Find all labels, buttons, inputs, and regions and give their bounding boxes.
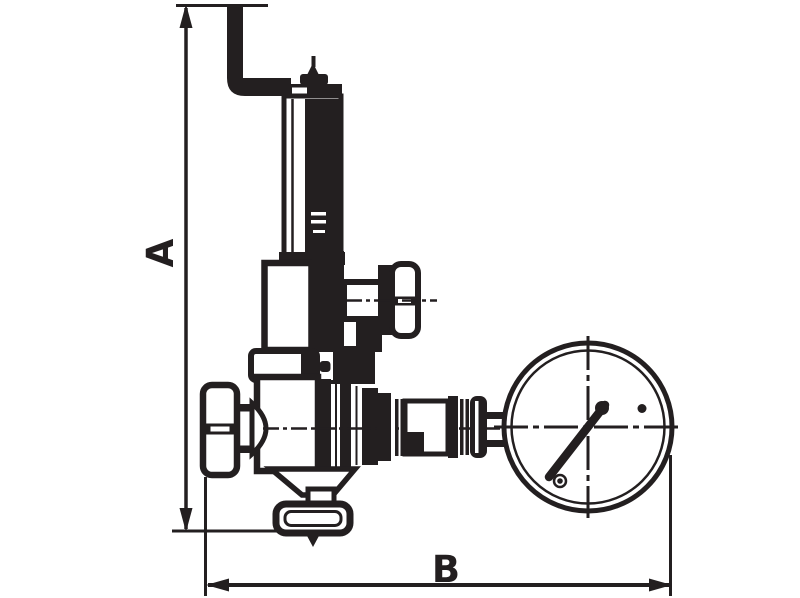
dimension-b-label: B	[432, 548, 460, 591]
spring-coil-mark	[311, 212, 326, 216]
screw-cap	[300, 74, 328, 85]
gauge-needle-head	[595, 401, 609, 415]
adjusting-screw	[288, 56, 342, 97]
spring-coil-mark	[311, 220, 326, 224]
spring-coil-mark	[313, 230, 325, 233]
pressure-gauge	[494, 336, 682, 518]
outlet-flange	[276, 504, 350, 533]
fitting-collar	[377, 393, 391, 461]
upper-housing-right-section	[312, 251, 344, 348]
arrow-up-icon	[180, 4, 193, 28]
hex-facet	[340, 383, 351, 468]
valve-dimension-diagram: A B	[0, 0, 800, 598]
gauge-screw-center	[557, 478, 563, 484]
fitting-collar	[448, 396, 458, 458]
gauge-needle	[549, 405, 605, 477]
gauge-socket-slot	[475, 401, 479, 453]
discharge-pipe	[227, 6, 291, 96]
arrow-left-icon	[206, 579, 229, 592]
flange-bolt	[320, 361, 331, 372]
technical-drawing-canvas: A B	[0, 0, 800, 598]
dimension-a-label: A	[139, 238, 182, 267]
upper-housing-shell	[265, 263, 312, 350]
fitting-thread-line	[466, 399, 470, 455]
upper-housing	[265, 251, 438, 352]
fitting-block-step	[405, 432, 424, 454]
spring-bonnet	[279, 96, 345, 265]
gauge-dial-dot	[638, 404, 647, 413]
hex-facet	[362, 388, 378, 465]
arrow-right-icon	[649, 579, 672, 592]
gauge-connection	[377, 393, 506, 461]
bent-pipe	[227, 6, 291, 96]
inlet-handle-slot	[211, 427, 230, 432]
fitting-thread-line	[460, 399, 464, 455]
arrow-down-icon	[180, 508, 193, 532]
fitting-thread-line	[395, 399, 399, 456]
flow-down-arrow-icon	[306, 534, 320, 547]
hex-facet	[318, 379, 331, 469]
